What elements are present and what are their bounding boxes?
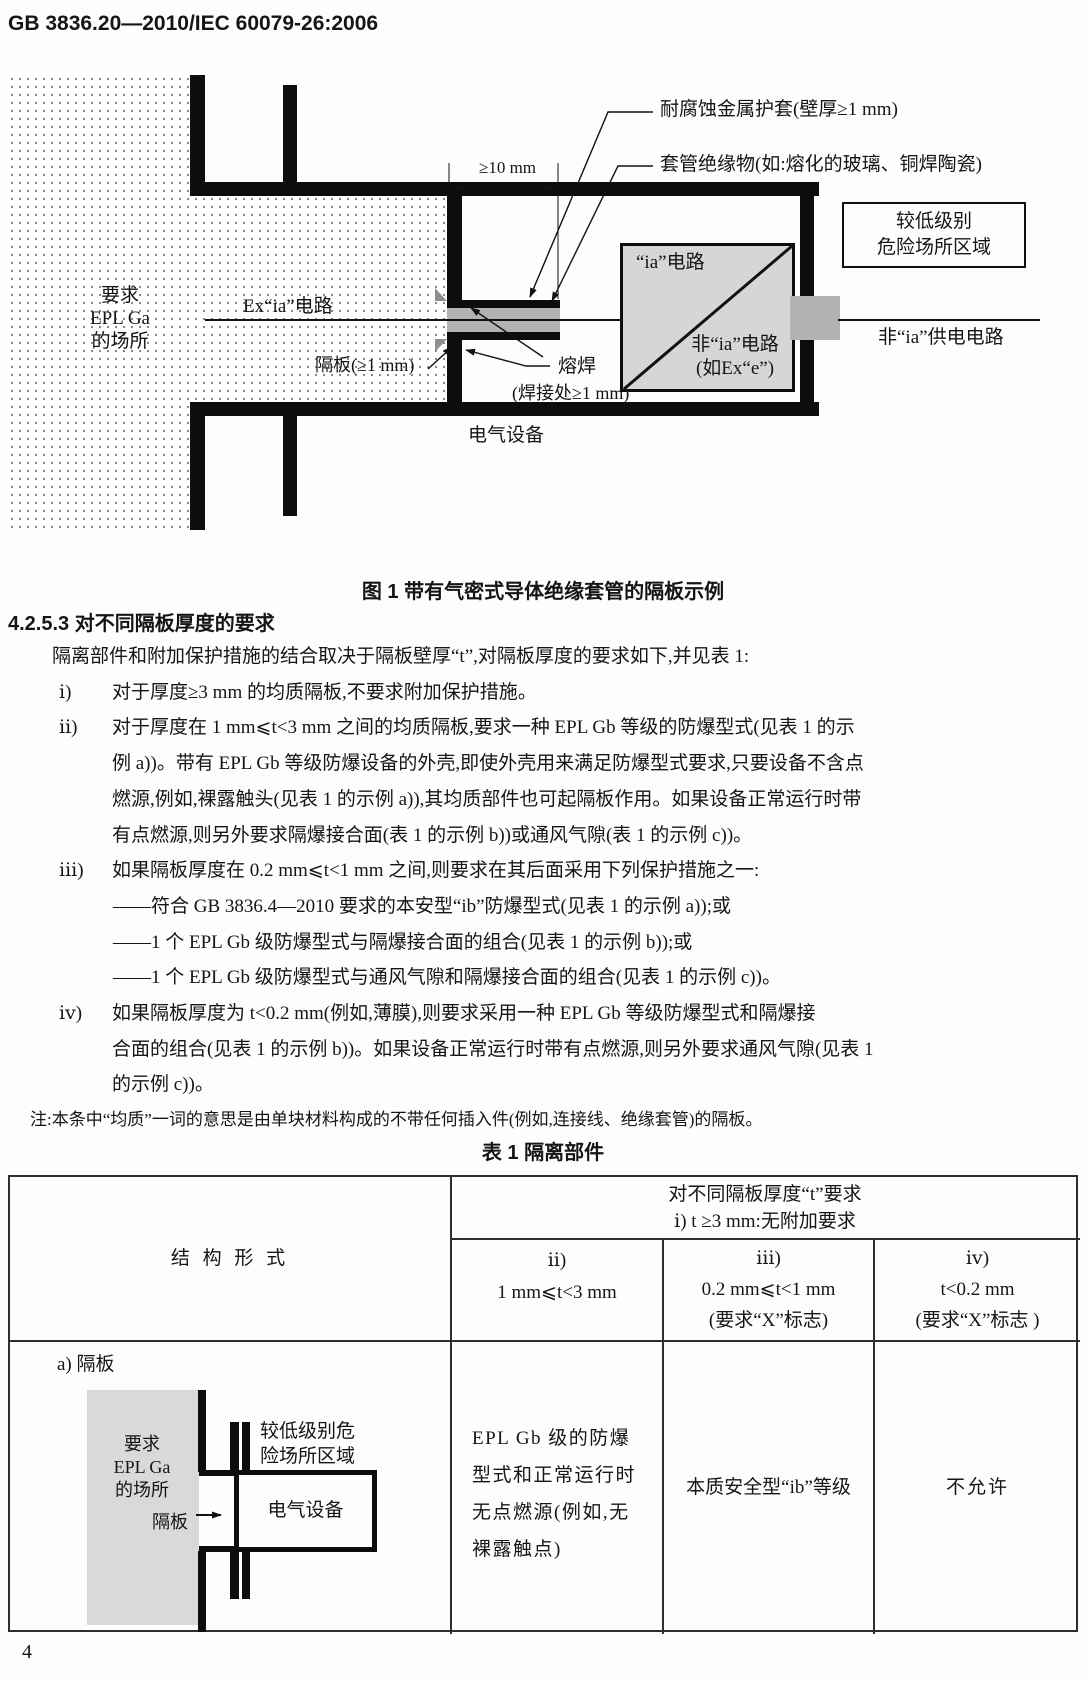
mini-flange-bottom-1 bbox=[230, 1551, 239, 1599]
lower-class-line2: 危险场所区域 bbox=[877, 235, 991, 261]
cell-line: 裸露触点) bbox=[472, 1531, 652, 1568]
paragraph-line: 有点燃源,则另外要求隔爆接合面(表 1 的示例 b))或通风气隙(表 1 的示例… bbox=[8, 818, 1080, 854]
insulation-label: 套管绝缘物(如:熔化的玻璃、铜焊陶瓷) bbox=[660, 153, 982, 177]
table-header-structure: 结 构 形 式 bbox=[10, 1177, 450, 1340]
mini-wall-bottom bbox=[198, 1551, 206, 1632]
weld-detail-label: (焊接处≥1 mm) bbox=[512, 381, 629, 405]
header-marker: ⅲ) bbox=[756, 1243, 781, 1274]
cell-line: 型式和正常运行时 bbox=[472, 1457, 652, 1494]
table-1: 结 构 形 式 对不同隔板厚度“t”要求 ⅰ) t ≥3 mm:无附加要求 ⅱ)… bbox=[8, 1175, 1078, 1632]
metal-sheath-bushing bbox=[447, 300, 560, 340]
mini-epl-line1: 要求 bbox=[92, 1433, 192, 1456]
dash-item: ——1 个 EPL Gb 级防爆型式与隔爆接合面的组合(见表 1 的示例 b))… bbox=[8, 925, 1080, 961]
paragraph-line: 燃源,例如,裸露触头(见表 1 的示例 a)),其均质部件也可起隔板作用。如果设… bbox=[8, 782, 1080, 818]
paragraph-line: 如果隔板厚度在 0.2 mm⩽t<1 mm 之间,则要求在其后面采用下列保护措施… bbox=[112, 860, 759, 881]
header-note: (要求“X”标志 ) bbox=[916, 1305, 1040, 1336]
mini-epl-line2: EPL Ga bbox=[92, 1456, 192, 1479]
header-text: 结 构 形 式 bbox=[171, 1243, 289, 1275]
mini-epl-ga-label: 要求 EPL Ga 的场所 bbox=[92, 1433, 192, 1502]
equipment-label: 电气设备 bbox=[468, 424, 544, 448]
list-item-iii: ⅲ) 如果隔板厚度在 0.2 mm⩽t<1 mm 之间,则要求在其后面采用下列保… bbox=[8, 853, 1080, 889]
header-marker: ⅳ) bbox=[966, 1243, 989, 1274]
weld-mark-bottom bbox=[435, 339, 447, 352]
section-heading: 4.2.5.3 对不同隔板厚度的要求 bbox=[8, 607, 275, 636]
epl-ga-line1: 要求 bbox=[60, 284, 180, 307]
mini-lower-line2: 险场所区域 bbox=[260, 1444, 355, 1469]
paragraph-line: 隔离部件和附加保护措施的结合取决于隔板壁厚“t”,对隔板厚度的要求如下,并见表 … bbox=[8, 639, 1080, 675]
section-body: 隔离部件和附加保护措施的结合取决于隔板壁厚“t”,对隔板厚度的要求如下,并见表 … bbox=[8, 639, 1080, 1135]
paragraph-line: 合面的组合(见表 1 的示例 b))。如果设备正常运行时带有点燃源,则另外要求通… bbox=[8, 1032, 1080, 1068]
flange-bar-bottom bbox=[283, 416, 297, 516]
page-number: 4 bbox=[22, 1641, 32, 1664]
cell-line: 无点燃源(例如,无 bbox=[472, 1494, 652, 1531]
cell-requirement-ii: EPL Gb 级的防爆 型式和正常运行时 无点燃源(例如,无 裸露触点) bbox=[472, 1420, 652, 1568]
table-header-top: 对不同隔板厚度“t”要求 bbox=[450, 1181, 1080, 1209]
cell-requirement-iii: 本质安全型“ib”等级 bbox=[664, 1342, 873, 1634]
item-marker: ⅳ) bbox=[59, 996, 82, 1032]
table-header-col-ii: ⅱ) 1 mm⩽t<3 mm bbox=[452, 1245, 662, 1340]
wall-left-bottom bbox=[190, 402, 205, 530]
mini-partition-label: 隔板 bbox=[150, 1508, 190, 1534]
paragraph-line: 例 a))。带有 EPL Gb 等级防爆设备的外壳,即使外壳用来满足防爆型式要求… bbox=[8, 746, 1080, 782]
mini-lower-area-label: 较低级别危 险场所区域 bbox=[260, 1419, 355, 1469]
weld-label: 熔焊 bbox=[558, 355, 596, 379]
table-1-title: 表 1 隔离部件 bbox=[0, 1136, 1086, 1165]
figure-1-caption: 图 1 带有气密式导体绝缘套管的隔板示例 bbox=[0, 575, 1086, 604]
paragraph-line: 对于厚度≥3 mm 的均质隔板,不要求附加保护措施。 bbox=[112, 682, 537, 703]
paragraph-line: 如果隔板厚度为 t<0.2 mm(例如,薄膜),则要求采用一种 EPL Gb 等… bbox=[112, 1003, 816, 1024]
lower-class-line1: 较低级别 bbox=[896, 209, 972, 235]
list-item-iv: ⅳ) 如果隔板厚度为 t<0.2 mm(例如,薄膜),则要求采用一种 EPL G… bbox=[8, 996, 1080, 1032]
figure-1: 较低级别 危险场所区域 bbox=[0, 0, 1086, 560]
flange-bar-top bbox=[283, 85, 297, 196]
note-line: 注:本条中“均质”一词的意思是由单块材料构成的不带任何插入件(例如,连接线、绝缘… bbox=[8, 1105, 1080, 1135]
mini-flange-bottom-2 bbox=[242, 1551, 250, 1599]
epl-ga-line2: EPL Ga bbox=[60, 307, 180, 330]
cell-line: 本质安全型“ib”等级 bbox=[686, 1472, 851, 1504]
dimension-label: ≥10 mm bbox=[455, 156, 560, 180]
enclosure-top-wall bbox=[190, 182, 819, 196]
table-divider bbox=[450, 1238, 1080, 1240]
item-marker: ⅱ) bbox=[59, 710, 77, 746]
ia-circuit-label: “ia”电路 bbox=[636, 251, 705, 275]
mini-equipment-box: 电气设备 bbox=[234, 1470, 377, 1552]
partition-label: 隔板(≥1 mm) bbox=[315, 353, 414, 377]
mini-wall-top bbox=[198, 1390, 206, 1472]
non-ia-line1: 非“ia”电路 bbox=[675, 333, 795, 357]
partition-bottom-segment bbox=[447, 340, 462, 402]
sheath-label: 耐腐蚀金属护套(壁厚≥1 mm) bbox=[660, 98, 898, 122]
non-ia-line2: (如Ex“e”) bbox=[675, 357, 795, 381]
table-header-top-sub: ⅰ) t ≥3 mm:无附加要求 bbox=[450, 1208, 1080, 1236]
mini-lower-line1: 较低级别危 bbox=[260, 1419, 355, 1444]
whitespace bbox=[205, 416, 447, 530]
cell-line: EPL Gb 级的防爆 bbox=[472, 1420, 652, 1457]
mini-flange-top-1 bbox=[230, 1422, 239, 1472]
weld-mark-top bbox=[435, 288, 447, 301]
whitespace bbox=[205, 75, 447, 182]
item-marker: ⅲ) bbox=[59, 853, 84, 889]
epl-ga-area-label: 要求 EPL Ga 的场所 bbox=[60, 284, 180, 353]
partition-top-segment bbox=[447, 196, 462, 300]
enclosure-bottom-wall bbox=[190, 402, 819, 416]
list-item-ii: ⅱ) 对于厚度在 1 mm⩽t<3 mm 之间的均质隔板,要求一种 EPL Gb… bbox=[8, 710, 1080, 746]
ex-ia-circuit-label: Ex“ia”电路 bbox=[243, 295, 333, 319]
header-note: (要求“X”标志) bbox=[709, 1305, 828, 1336]
dash-item: ——符合 GB 3836.4—2010 要求的本安型“ib”防爆型式(见表 1 … bbox=[8, 889, 1080, 925]
mini-equipment-label: 电气设备 bbox=[267, 1495, 343, 1527]
feedthrough-connector bbox=[790, 296, 840, 340]
table-header-col-iv: ⅳ) t<0.2 mm (要求“X”标志 ) bbox=[875, 1243, 1080, 1340]
row-a-label: a) 隔板 bbox=[57, 1349, 115, 1376]
epl-ga-line3: 的场所 bbox=[60, 330, 180, 353]
table-header-col-iii: ⅲ) 0.2 mm⩽t<1 mm (要求“X”标志) bbox=[664, 1243, 873, 1340]
header-range: t<0.2 mm bbox=[940, 1274, 1014, 1305]
lower-class-area-box: 较低级别 危险场所区域 bbox=[842, 202, 1026, 268]
mini-epl-line3: 的场所 bbox=[92, 1479, 192, 1502]
item-marker: ⅰ) bbox=[59, 675, 71, 711]
non-ia-supply-label: 非“ia”供电电路 bbox=[878, 326, 1004, 350]
paragraph-line: 的示例 c))。 bbox=[8, 1067, 1080, 1103]
cell-line: 不允许 bbox=[946, 1472, 1009, 1504]
paragraph-line: 对于厚度在 1 mm⩽t<3 mm 之间的均质隔板,要求一种 EPL Gb 等级… bbox=[112, 717, 855, 738]
document-page: GB 3836.20—2010/IEC 60079-26:2006 较低级别 危… bbox=[0, 0, 1086, 1681]
cell-requirement-iv: 不允许 bbox=[875, 1342, 1080, 1634]
header-range: 1 mm⩽t<3 mm bbox=[497, 1277, 617, 1309]
list-item-i: ⅰ) 对于厚度≥3 mm 的均质隔板,不要求附加保护措施。 bbox=[8, 675, 1080, 711]
dash-item: ——1 个 EPL Gb 级防爆型式与通风气隙和隔爆接合面的组合(见表 1 的示… bbox=[8, 960, 1080, 996]
header-marker: ⅱ) bbox=[548, 1245, 566, 1277]
mini-flange-top-2 bbox=[242, 1422, 250, 1472]
header-range: 0.2 mm⩽t<1 mm bbox=[702, 1274, 836, 1305]
wall-left-top bbox=[190, 75, 205, 196]
non-ia-circuit-label: 非“ia”电路 (如Ex“e”) bbox=[675, 333, 795, 381]
